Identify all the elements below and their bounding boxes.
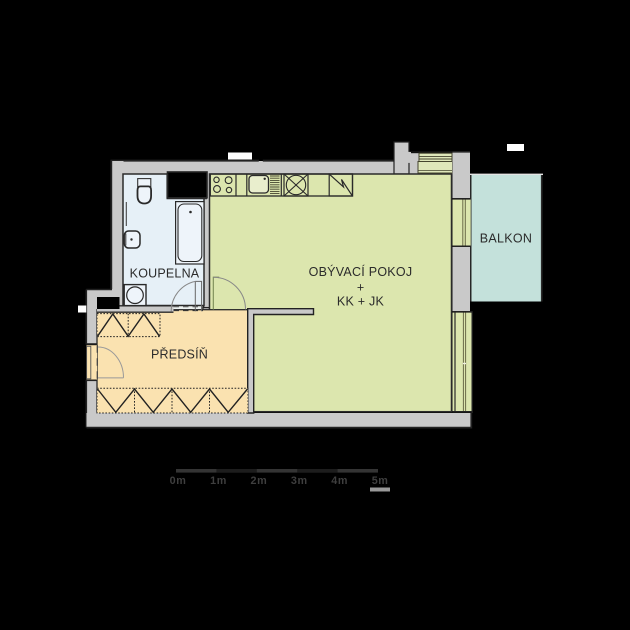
- svg-text:2m: 2m: [250, 475, 267, 487]
- svg-text:3m: 3m: [291, 475, 308, 487]
- svg-text:OBÝVACÍ POKOJ: OBÝVACÍ POKOJ: [309, 264, 413, 279]
- svg-text:+: +: [357, 281, 364, 295]
- svg-text:1m: 1m: [210, 475, 227, 487]
- svg-text:BALKON: BALKON: [480, 232, 533, 246]
- svg-text:0m: 0m: [170, 475, 187, 487]
- svg-text:KOUPELNA: KOUPELNA: [130, 267, 200, 281]
- svg-text:KK + JK: KK + JK: [337, 295, 385, 309]
- svg-text:PŘEDSÍŇ: PŘEDSÍŇ: [151, 347, 208, 362]
- svg-text:5m: 5m: [372, 475, 389, 487]
- svg-text:4m: 4m: [331, 475, 348, 487]
